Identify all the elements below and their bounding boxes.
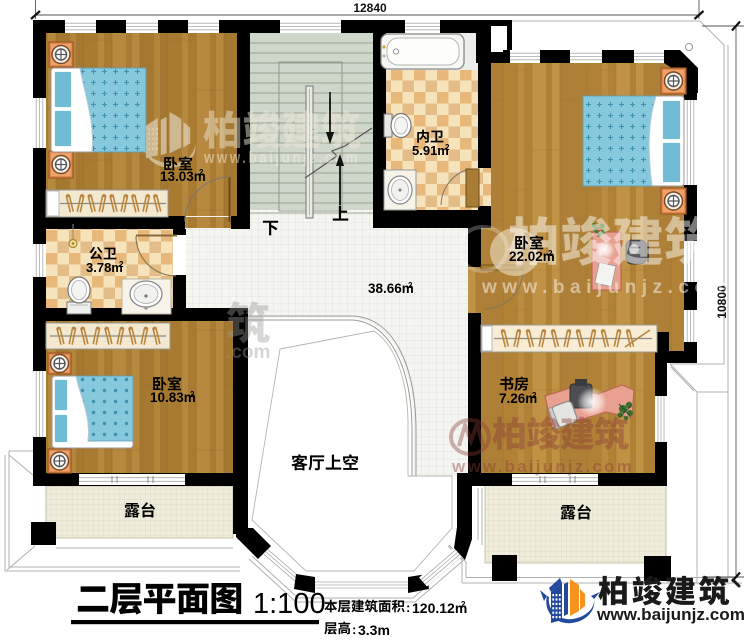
svg-text:2: 2: [199, 168, 204, 177]
svg-text::: :: [406, 600, 410, 615]
svg-text:38.66m: 38.66m: [368, 281, 414, 296]
svg-text::: :: [352, 622, 356, 637]
svg-text:www.baijunjz.com: www.baijunjz.com: [451, 457, 634, 476]
svg-text:12840: 12840: [353, 1, 387, 15]
svg-text:2: 2: [461, 600, 466, 609]
svg-text:www.baijunjz.com: www.baijunjz.com: [596, 606, 745, 624]
svg-text:2: 2: [548, 249, 553, 258]
svg-text:2: 2: [532, 391, 537, 400]
svg-text:2: 2: [190, 390, 195, 399]
svg-text:5.91m: 5.91m: [412, 143, 449, 158]
svg-text:1:100: 1:100: [253, 588, 326, 620]
svg-text:2: 2: [445, 143, 450, 152]
svg-text:2: 2: [408, 281, 413, 290]
svg-text:3.3m: 3.3m: [358, 622, 390, 638]
svg-text:www.baijunjz.com: www.baijunjz.com: [481, 277, 734, 298]
svg-text:3.78m: 3.78m: [86, 260, 123, 275]
svg-text:120.12m: 120.12m: [412, 600, 467, 616]
svg-text:.com: .com: [226, 342, 270, 363]
svg-text:2: 2: [119, 260, 124, 269]
svg-text:10.83m: 10.83m: [150, 390, 196, 405]
svg-text:www.baijunjz.com: www.baijunjz.com: [203, 149, 360, 167]
